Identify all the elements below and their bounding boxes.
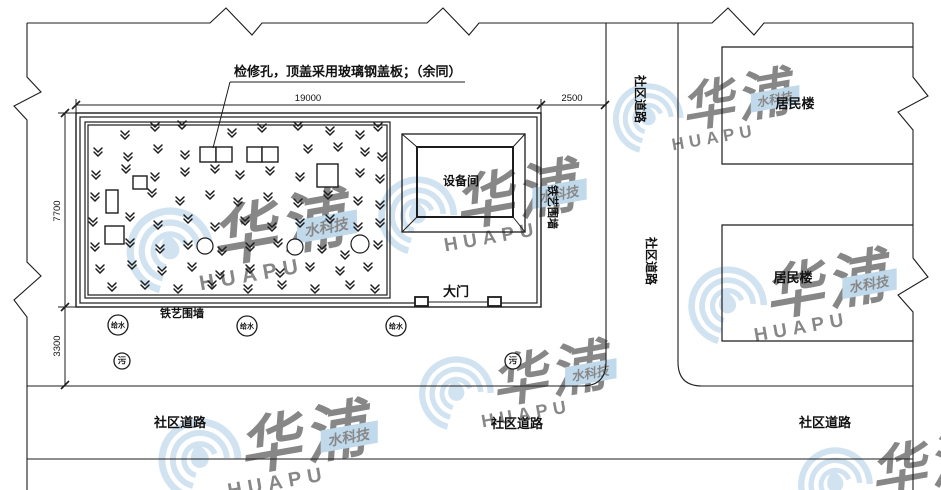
grass-symbol (296, 173, 304, 181)
building-bottom-label: 居民楼 (773, 270, 812, 285)
grass-symbol (326, 127, 334, 135)
grass-symbol (121, 131, 129, 139)
boundary-right (898, 23, 928, 490)
grass-symbol (181, 168, 189, 176)
manhole-circle (287, 239, 303, 255)
grass-symbol (148, 189, 156, 197)
grass-symbol (154, 145, 162, 153)
annotation-text: 检修孔，顶盖采用玻璃钢盖板；（余同） (234, 64, 462, 80)
dim-2500-label: 2500 (561, 93, 582, 104)
grass-symbol (346, 281, 354, 289)
well-marker: 给水 (108, 315, 128, 335)
well-label: 污 (509, 356, 518, 366)
grass-symbol (206, 191, 214, 199)
grass-symbol (278, 281, 286, 289)
grass-symbol (356, 131, 364, 139)
grass-symbol (174, 285, 182, 293)
grass-symbol (176, 197, 184, 205)
building-top-label: 居民楼 (775, 96, 814, 111)
grass-symbol (94, 148, 102, 156)
road-label-vertical-top: 社区道路 (633, 74, 648, 124)
fence-right-label: 铁艺围墙 (546, 185, 560, 229)
site-plan-svg: 华浦HUAPU水科技华浦HUAPU水科技华浦HUAPU水科技华浦HUAPU水科技… (0, 0, 941, 490)
manhole-rect (247, 147, 262, 162)
road-label-vertical-mid: 社区道路 (644, 236, 659, 286)
grass-symbol (374, 123, 382, 131)
grass-symbol (96, 265, 104, 273)
grass-symbol (361, 148, 369, 156)
grass-symbol (228, 129, 236, 137)
manhole-rect (262, 147, 278, 162)
grass-symbol (236, 171, 244, 179)
road-label-bottom-mid: 社区道路 (490, 416, 544, 431)
well-label: 给水 (389, 322, 404, 331)
grass-symbol (181, 151, 189, 159)
road-label-bottom-left: 社区道路 (153, 415, 207, 430)
huapu-watermark: 华浦HUAPU水科技 (362, 139, 596, 272)
gate-label: 大门 (443, 284, 469, 299)
manhole-circle (351, 235, 369, 253)
grass-symbol (306, 263, 314, 271)
grass-symbol (334, 143, 342, 151)
grass-symbol (211, 165, 219, 173)
dim-19000-label: 19000 (295, 93, 321, 104)
manhole-rect (133, 176, 147, 189)
road-label-bottom-right: 社区道路 (798, 415, 852, 430)
manhole-rect (105, 226, 124, 244)
boundary-left (14, 23, 41, 490)
well-marker: 给水 (386, 316, 406, 336)
grass-symbol (364, 263, 372, 271)
grass-symbol (371, 285, 379, 293)
well-label: 给水 (240, 322, 255, 331)
grass-symbol (294, 122, 302, 130)
dim-3300-label: 3300 (52, 335, 63, 356)
gate-post-right (488, 297, 501, 306)
grass-symbol (378, 153, 386, 161)
watermark-cn-text: 华浦 (865, 423, 941, 490)
grass-symbol (89, 218, 97, 226)
grass-symbol (304, 145, 312, 153)
manhole-circle (197, 238, 213, 254)
huapu-watermark: 华浦HUAPU水科技 (141, 379, 388, 490)
grass-symbol (91, 243, 99, 251)
dim-7700-label: 7700 (52, 200, 63, 221)
site-plan-drawing: 华浦HUAPU水科技华浦HUAPU水科技华浦HUAPU水科技华浦HUAPU水科技… (0, 0, 941, 490)
grass-symbol (266, 167, 274, 175)
grass-symbol (92, 171, 100, 179)
grass-symbol (151, 123, 159, 131)
grass-symbol (126, 213, 134, 221)
well-label: 给水 (111, 321, 126, 330)
grass-symbol (336, 267, 344, 275)
grass-symbol (311, 285, 319, 293)
grass-symbol (374, 241, 382, 249)
well-marker: 给水 (237, 316, 257, 336)
annotation-leader-line (213, 82, 230, 148)
grass-symbol (356, 169, 364, 177)
grass-symbol (108, 283, 116, 291)
grass-symbol (376, 175, 384, 183)
gate-post-left (415, 297, 428, 306)
boundary-top (27, 8, 913, 35)
manhole-rect (106, 190, 118, 213)
manhole-rect (200, 147, 216, 162)
grass-symbol (91, 193, 99, 201)
equipment-room-label: 设备间 (443, 173, 479, 188)
grass-symbol (354, 197, 362, 205)
annotation-leader (213, 82, 465, 148)
well-label: 污 (118, 356, 127, 366)
fence-bottom-label: 铁艺围墙 (160, 306, 204, 320)
well-marker: 污 (505, 353, 521, 369)
manhole-rect (317, 164, 338, 187)
grass-symbol (151, 173, 159, 181)
grass-symbol (122, 165, 130, 173)
grass-symbol (188, 263, 196, 271)
manhole-rect (216, 147, 232, 162)
well-marker: 污 (114, 353, 130, 369)
grass-symbol (124, 153, 132, 161)
